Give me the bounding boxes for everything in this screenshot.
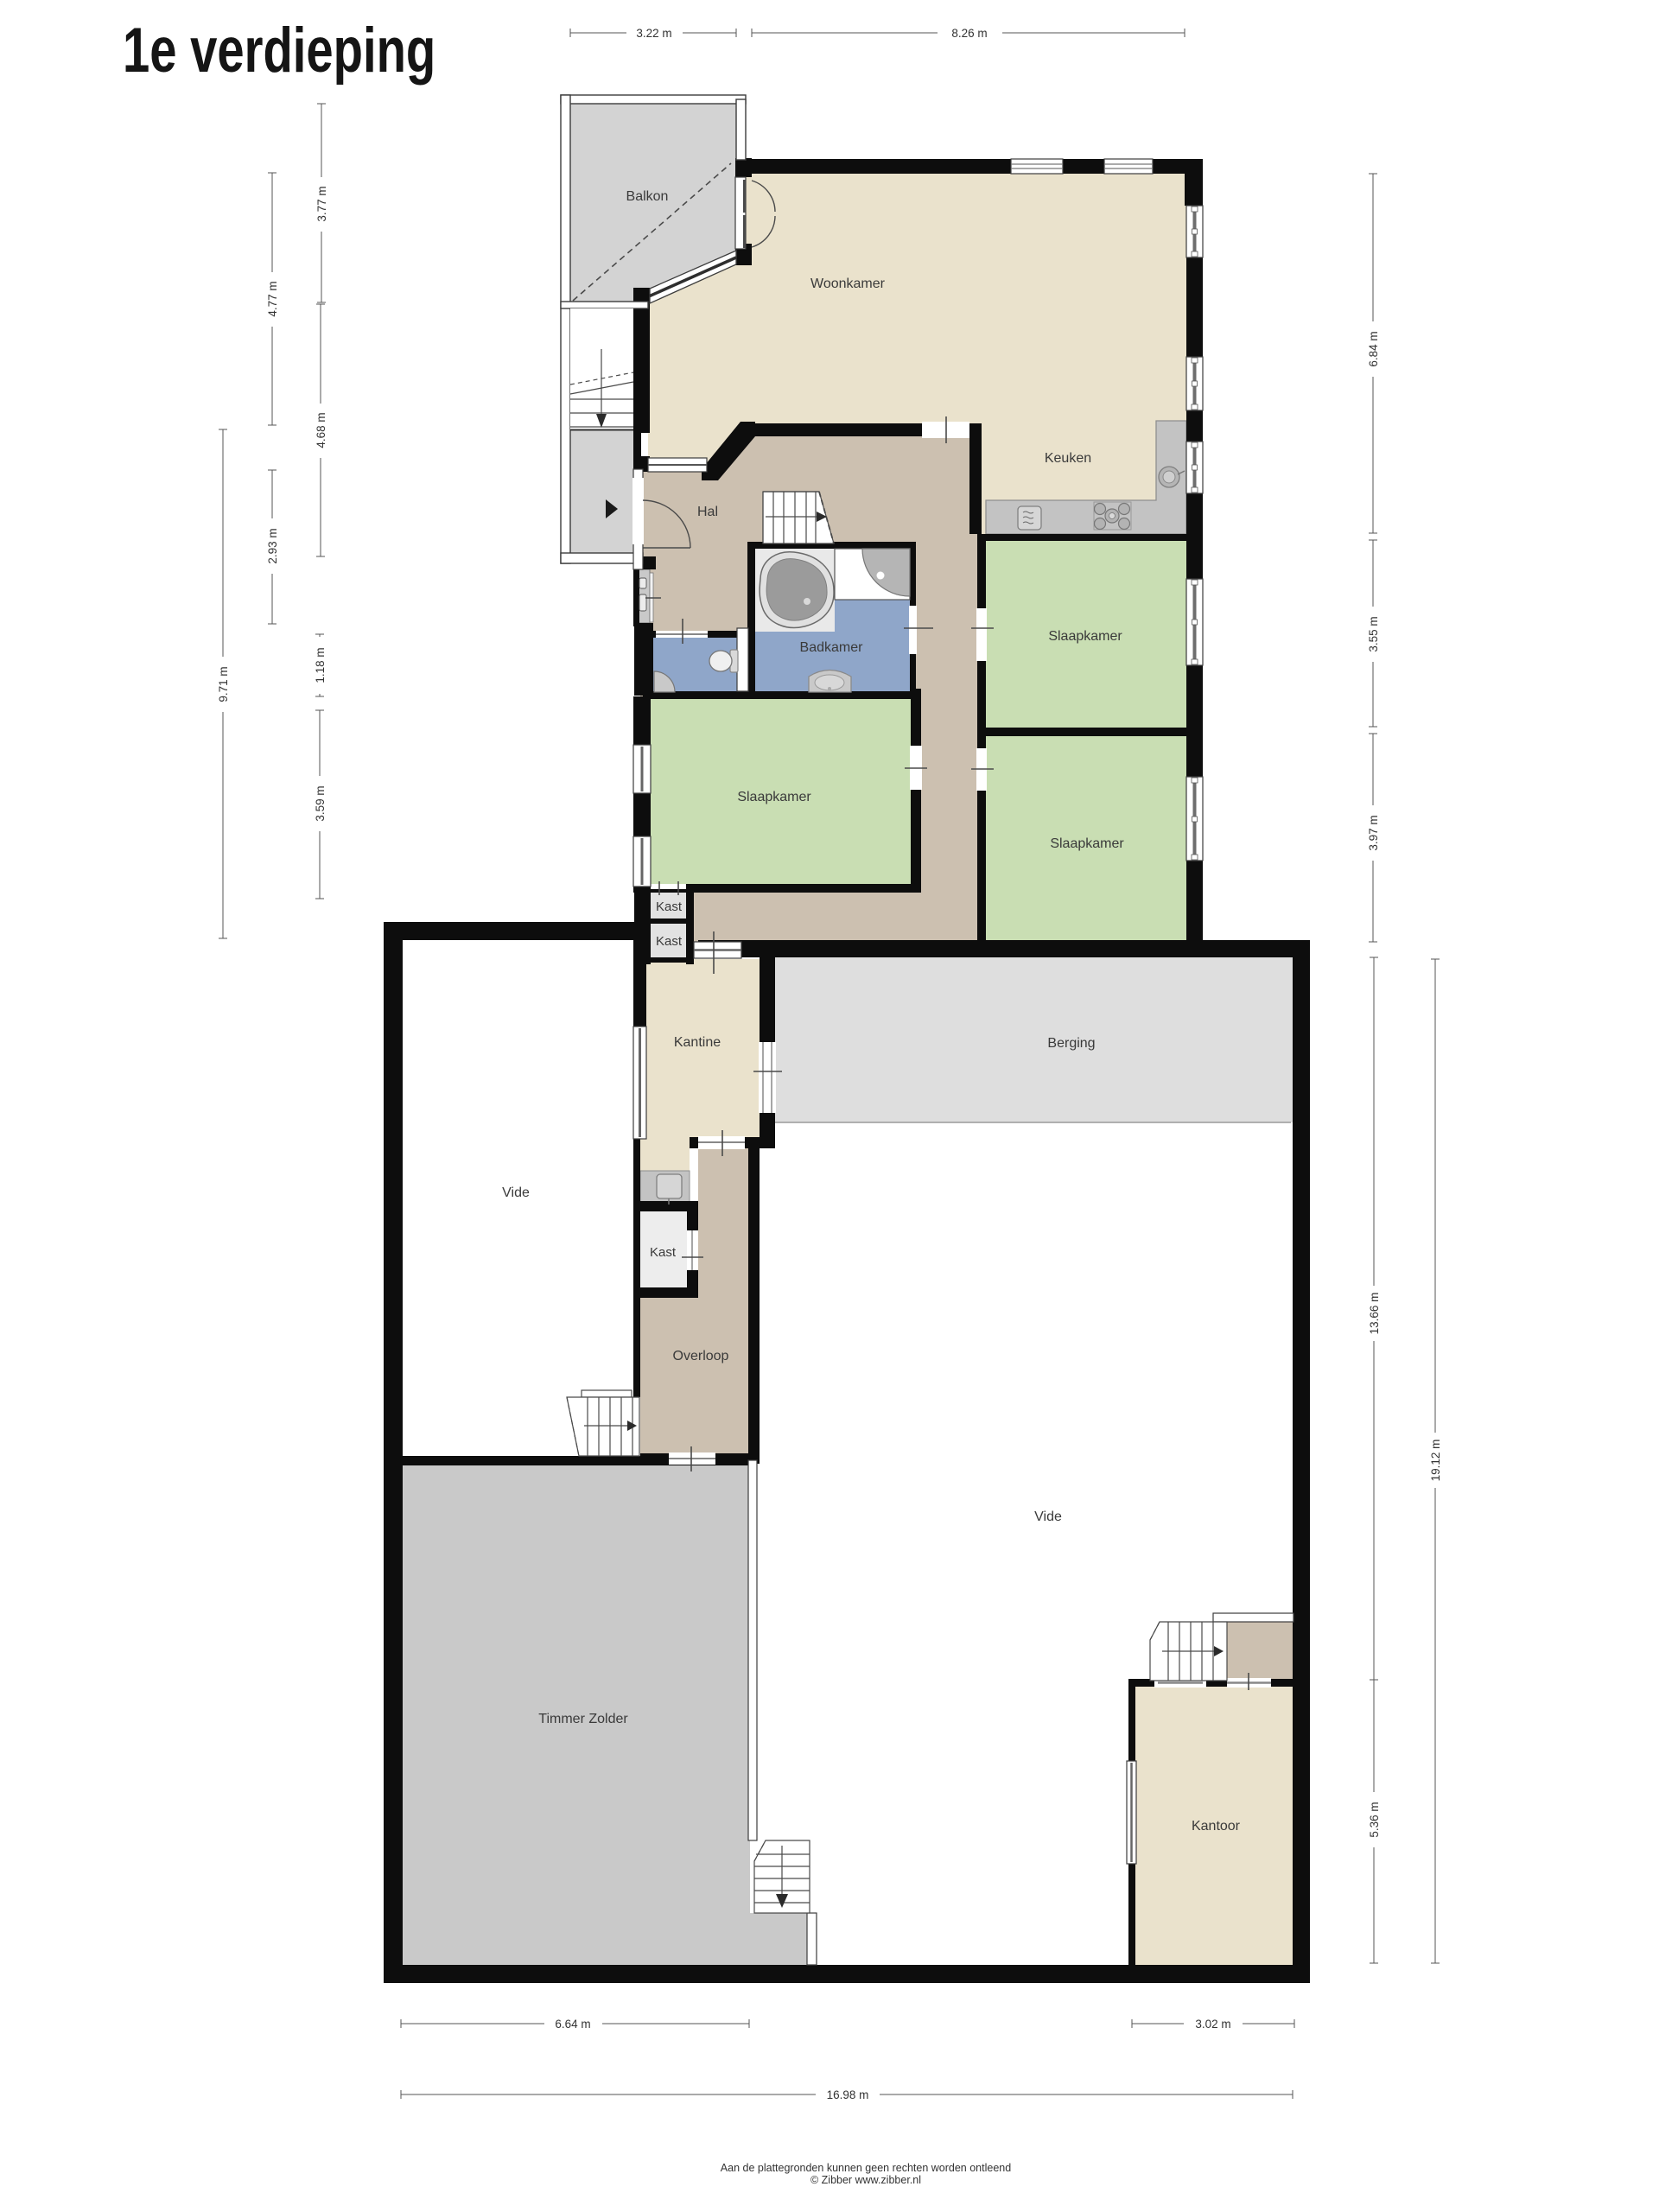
svg-text:3.55 m: 3.55 m xyxy=(1367,616,1380,652)
svg-text:3.59 m: 3.59 m xyxy=(314,785,327,821)
svg-text:Woonkamer: Woonkamer xyxy=(810,276,886,291)
svg-text:8.26 m: 8.26 m xyxy=(951,27,987,40)
svg-text:Kast: Kast xyxy=(656,899,683,914)
svg-text:Balkon: Balkon xyxy=(626,189,669,204)
svg-text:Kantine: Kantine xyxy=(674,1035,721,1050)
svg-text:6.64 m: 6.64 m xyxy=(555,2018,590,2031)
svg-text:Vide: Vide xyxy=(1034,1510,1062,1524)
svg-text:5.36 m: 5.36 m xyxy=(1368,1802,1381,1837)
svg-text:Slaapkamer: Slaapkamer xyxy=(1050,836,1124,851)
svg-text:Keuken: Keuken xyxy=(1045,451,1091,466)
svg-text:9.71 m: 9.71 m xyxy=(217,666,230,702)
svg-text:13.66 m: 13.66 m xyxy=(1368,1293,1381,1335)
svg-text:Kantoor: Kantoor xyxy=(1192,1819,1241,1834)
svg-text:3.77 m: 3.77 m xyxy=(315,186,328,221)
svg-text:Slaapkamer: Slaapkamer xyxy=(1048,629,1122,644)
svg-text:3.97 m: 3.97 m xyxy=(1367,815,1380,850)
svg-text:Vide: Vide xyxy=(502,1185,530,1200)
svg-text:2.93 m: 2.93 m xyxy=(266,528,279,563)
svg-text:Badkamer: Badkamer xyxy=(800,640,864,655)
svg-text:6.84 m: 6.84 m xyxy=(1367,331,1380,366)
svg-text:Kast: Kast xyxy=(656,934,683,949)
svg-text:3.02 m: 3.02 m xyxy=(1195,2018,1230,2031)
svg-text:1.18 m: 1.18 m xyxy=(314,647,327,683)
svg-text:1e verdieping: 1e verdieping xyxy=(123,15,435,86)
svg-text:Timmer Zolder: Timmer Zolder xyxy=(538,1712,628,1726)
svg-text:Berging: Berging xyxy=(1047,1036,1095,1051)
svg-text:© Zibber www.zibber.nl: © Zibber www.zibber.nl xyxy=(810,2174,921,2186)
svg-text:Aan de plattegronden kunnen ge: Aan de plattegronden kunnen geen rechten… xyxy=(721,2162,1011,2174)
svg-text:16.98 m: 16.98 m xyxy=(827,2088,869,2101)
svg-text:Overloop: Overloop xyxy=(673,1349,729,1363)
svg-text:19.12 m: 19.12 m xyxy=(1429,1440,1442,1482)
svg-text:3.22 m: 3.22 m xyxy=(636,27,671,40)
svg-text:Slaapkamer: Slaapkamer xyxy=(737,790,811,804)
svg-text:4.77 m: 4.77 m xyxy=(266,281,279,316)
svg-text:Hal: Hal xyxy=(697,505,718,519)
svg-text:Kast: Kast xyxy=(650,1245,677,1260)
svg-text:4.68 m: 4.68 m xyxy=(315,412,327,448)
